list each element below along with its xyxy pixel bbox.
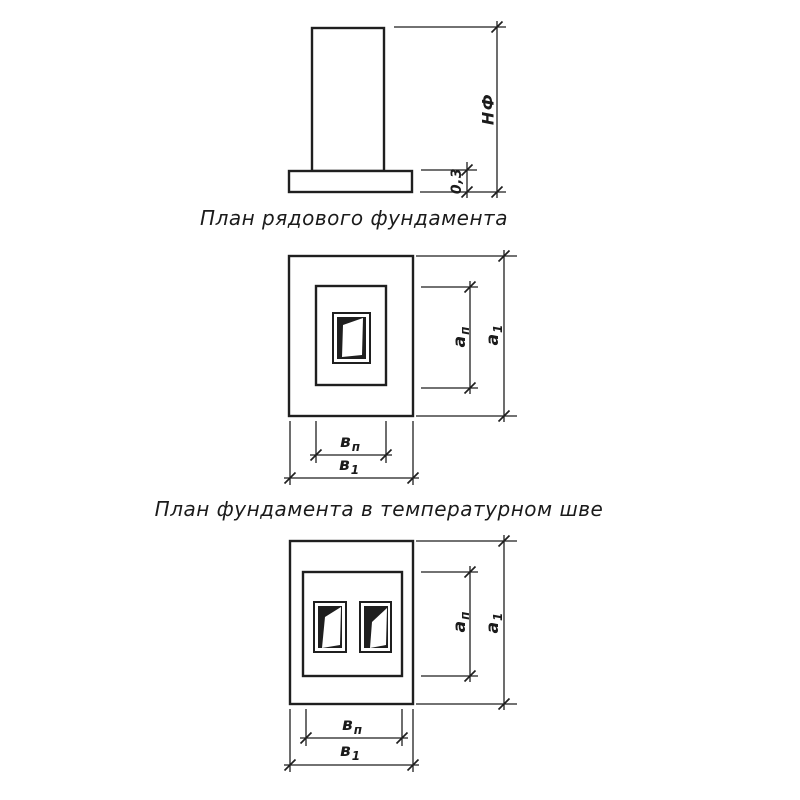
dim-subscript: 1 <box>351 463 359 477</box>
column-socket-left <box>314 602 346 652</box>
column-outline <box>312 28 384 171</box>
elevation-view <box>289 21 506 198</box>
foundation-drawing-sheet: НФ 0,3 План рядового фундамента ап а1 вп… <box>0 0 800 800</box>
dim-symbol: а <box>450 336 470 347</box>
dim-symbol: в <box>340 741 351 761</box>
dim-subscript: 1 <box>352 749 360 763</box>
dim-label-slab-thickness: 0,3 <box>449 168 465 194</box>
dim-symbol: в <box>340 432 351 452</box>
dim-symbol: в <box>339 455 350 475</box>
dim-symbol: а <box>450 621 470 632</box>
dim-symbol: а <box>483 622 503 633</box>
dim-symbol: а <box>483 334 503 345</box>
plan-regular-foundation <box>284 250 517 485</box>
dim-subscript: 1 <box>491 613 505 621</box>
dim-subscript: п <box>458 327 472 335</box>
dim-label-b-inner: вп <box>340 432 360 454</box>
dim-symbol: в <box>342 715 353 735</box>
dim-label-a-outer: а1 <box>483 613 505 634</box>
caption-plan-regular: План рядового фундамента <box>200 206 508 230</box>
dim-label-a-inner: ап <box>450 612 472 633</box>
footing-slab-outline <box>289 171 412 192</box>
technical-drawing-canvas <box>0 0 800 800</box>
dim-subscript: п <box>352 440 360 454</box>
plan-expansion-joint-foundation <box>284 535 517 772</box>
column-socket <box>333 313 370 363</box>
dim-label-foundation-height: НФ <box>479 93 498 125</box>
column-socket-right <box>360 602 391 652</box>
dim-label-a-outer: а1 <box>483 325 505 346</box>
caption-plan-expansion: План фундамента в температурном шве <box>155 497 604 521</box>
dim-subscript: п <box>458 612 472 620</box>
dim-label-b-outer: в1 <box>339 455 359 477</box>
dim-subscript: п <box>354 723 362 737</box>
dim-subscript: 1 <box>491 325 505 333</box>
dim-label-b-inner: вп <box>342 715 362 737</box>
dim-label-a-inner: ап <box>450 327 472 348</box>
dim-label-b-outer: в1 <box>340 741 360 763</box>
